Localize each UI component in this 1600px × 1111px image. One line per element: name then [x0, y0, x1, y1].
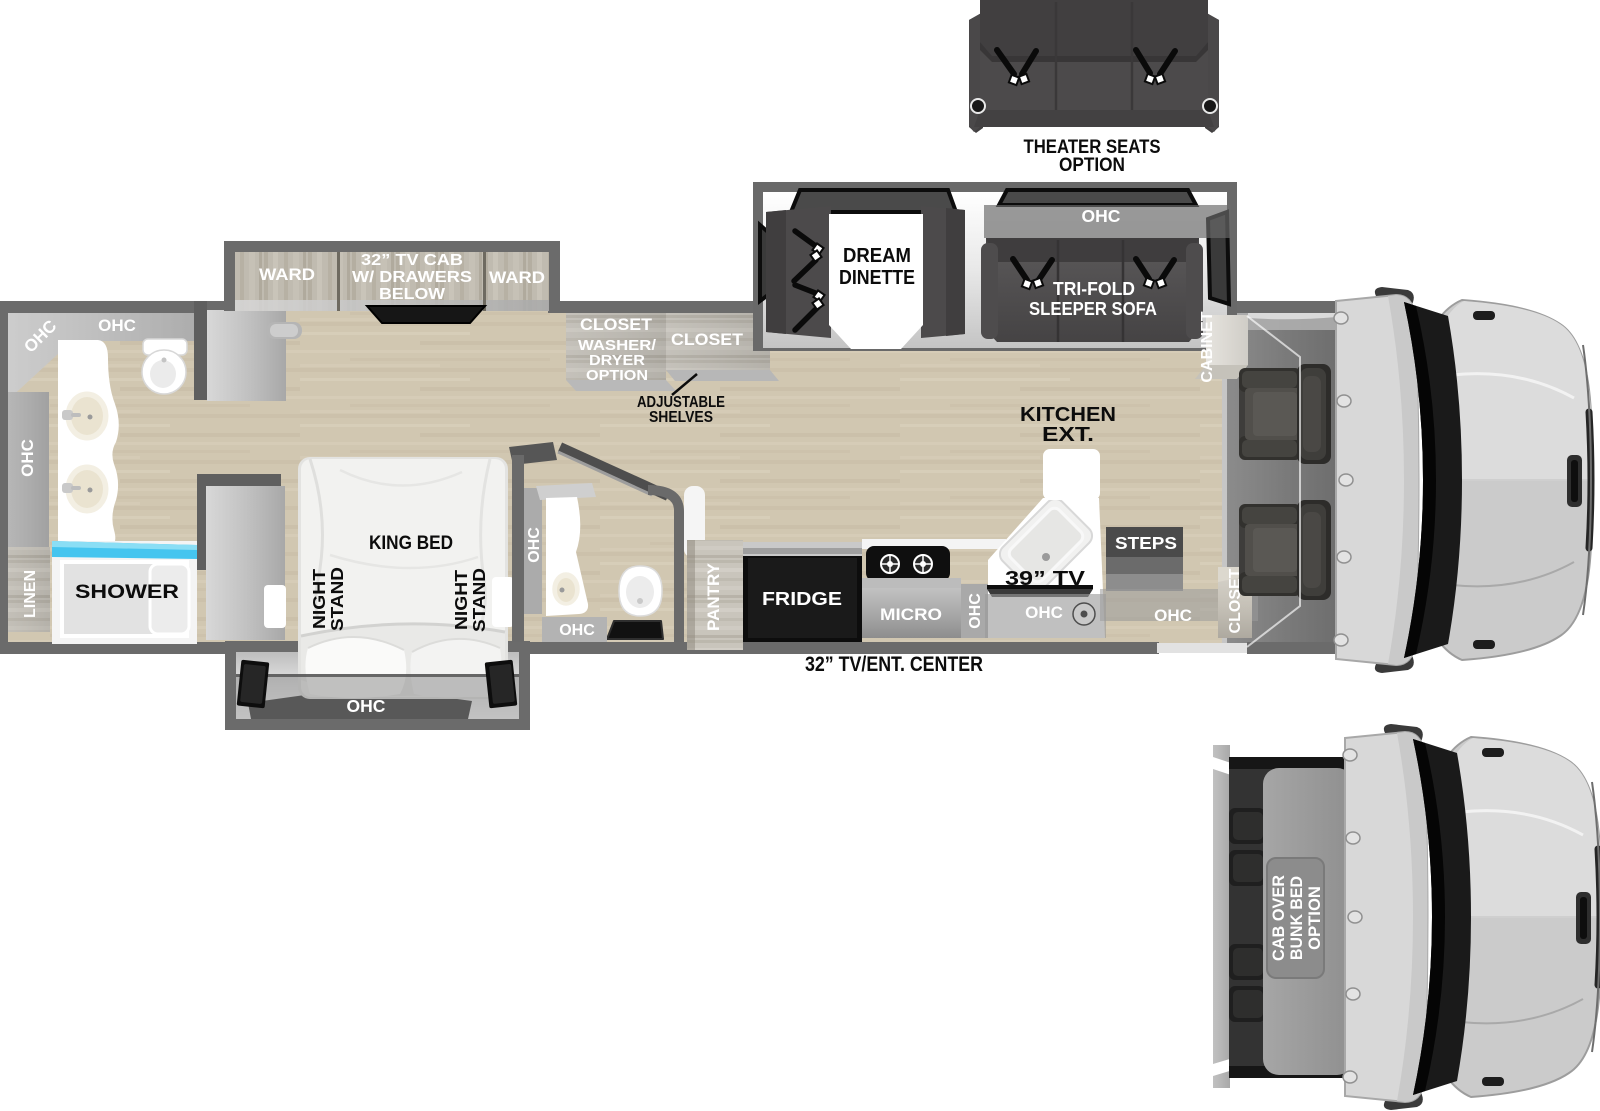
svg-text:BUNK BED: BUNK BED — [1288, 876, 1306, 960]
svg-text:FRIDGE: FRIDGE — [762, 589, 842, 609]
svg-text:OHC: OHC — [1154, 606, 1192, 625]
svg-text:OPTION: OPTION — [1306, 886, 1324, 950]
svg-text:DREAM: DREAM — [843, 245, 911, 267]
svg-text:CLOSET: CLOSET — [580, 315, 653, 334]
svg-text:W/ DRAWERS: W/ DRAWERS — [352, 269, 472, 286]
svg-text:MICRO: MICRO — [880, 605, 942, 624]
svg-text:32” TV CAB: 32” TV CAB — [361, 252, 463, 269]
svg-text:WARD: WARD — [489, 268, 545, 287]
svg-text:CABINET: CABINET — [1199, 311, 1216, 382]
svg-text:WARD: WARD — [259, 265, 315, 284]
svg-text:STAND: STAND — [327, 567, 347, 631]
svg-text:OHC: OHC — [98, 316, 136, 335]
svg-text:WASHER/: WASHER/ — [578, 338, 656, 354]
svg-text:BELOW: BELOW — [379, 286, 446, 303]
svg-text:OHC: OHC — [526, 527, 543, 563]
svg-text:KING BED: KING BED — [369, 532, 453, 554]
svg-text:OHC: OHC — [967, 593, 984, 629]
svg-text:SHOWER: SHOWER — [75, 582, 179, 603]
svg-text:CAB OVER: CAB OVER — [1270, 875, 1288, 961]
svg-text:32” TV/ENT. CENTER: 32” TV/ENT. CENTER — [805, 653, 983, 676]
svg-text:OHC: OHC — [1082, 206, 1121, 226]
svg-text:OHC: OHC — [1025, 603, 1063, 622]
svg-text:DINETTE: DINETTE — [839, 267, 915, 289]
svg-text:LINEN: LINEN — [22, 570, 39, 618]
svg-text:STAND: STAND — [469, 568, 489, 632]
svg-text:TRI-FOLD: TRI-FOLD — [1053, 279, 1135, 299]
svg-text:KITCHEN: KITCHEN — [1020, 404, 1116, 426]
svg-text:OPTION: OPTION — [586, 368, 648, 384]
svg-text:DRYER: DRYER — [589, 353, 646, 369]
svg-text:OHC: OHC — [18, 439, 37, 477]
svg-text:OHC: OHC — [559, 622, 595, 639]
svg-text:SHELVES: SHELVES — [649, 409, 713, 426]
svg-text:SLEEPER SOFA: SLEEPER SOFA — [1029, 299, 1157, 319]
svg-text:OPTION: OPTION — [1059, 154, 1125, 176]
svg-text:STEPS: STEPS — [1115, 533, 1177, 553]
svg-text:EXT.: EXT. — [1042, 424, 1094, 446]
svg-text:NIGHT: NIGHT — [451, 570, 471, 630]
svg-text:OHC: OHC — [347, 696, 386, 716]
svg-text:CLOSET: CLOSET — [671, 330, 744, 349]
svg-text:NIGHT: NIGHT — [309, 569, 329, 629]
svg-text:PANTRY: PANTRY — [704, 562, 723, 631]
